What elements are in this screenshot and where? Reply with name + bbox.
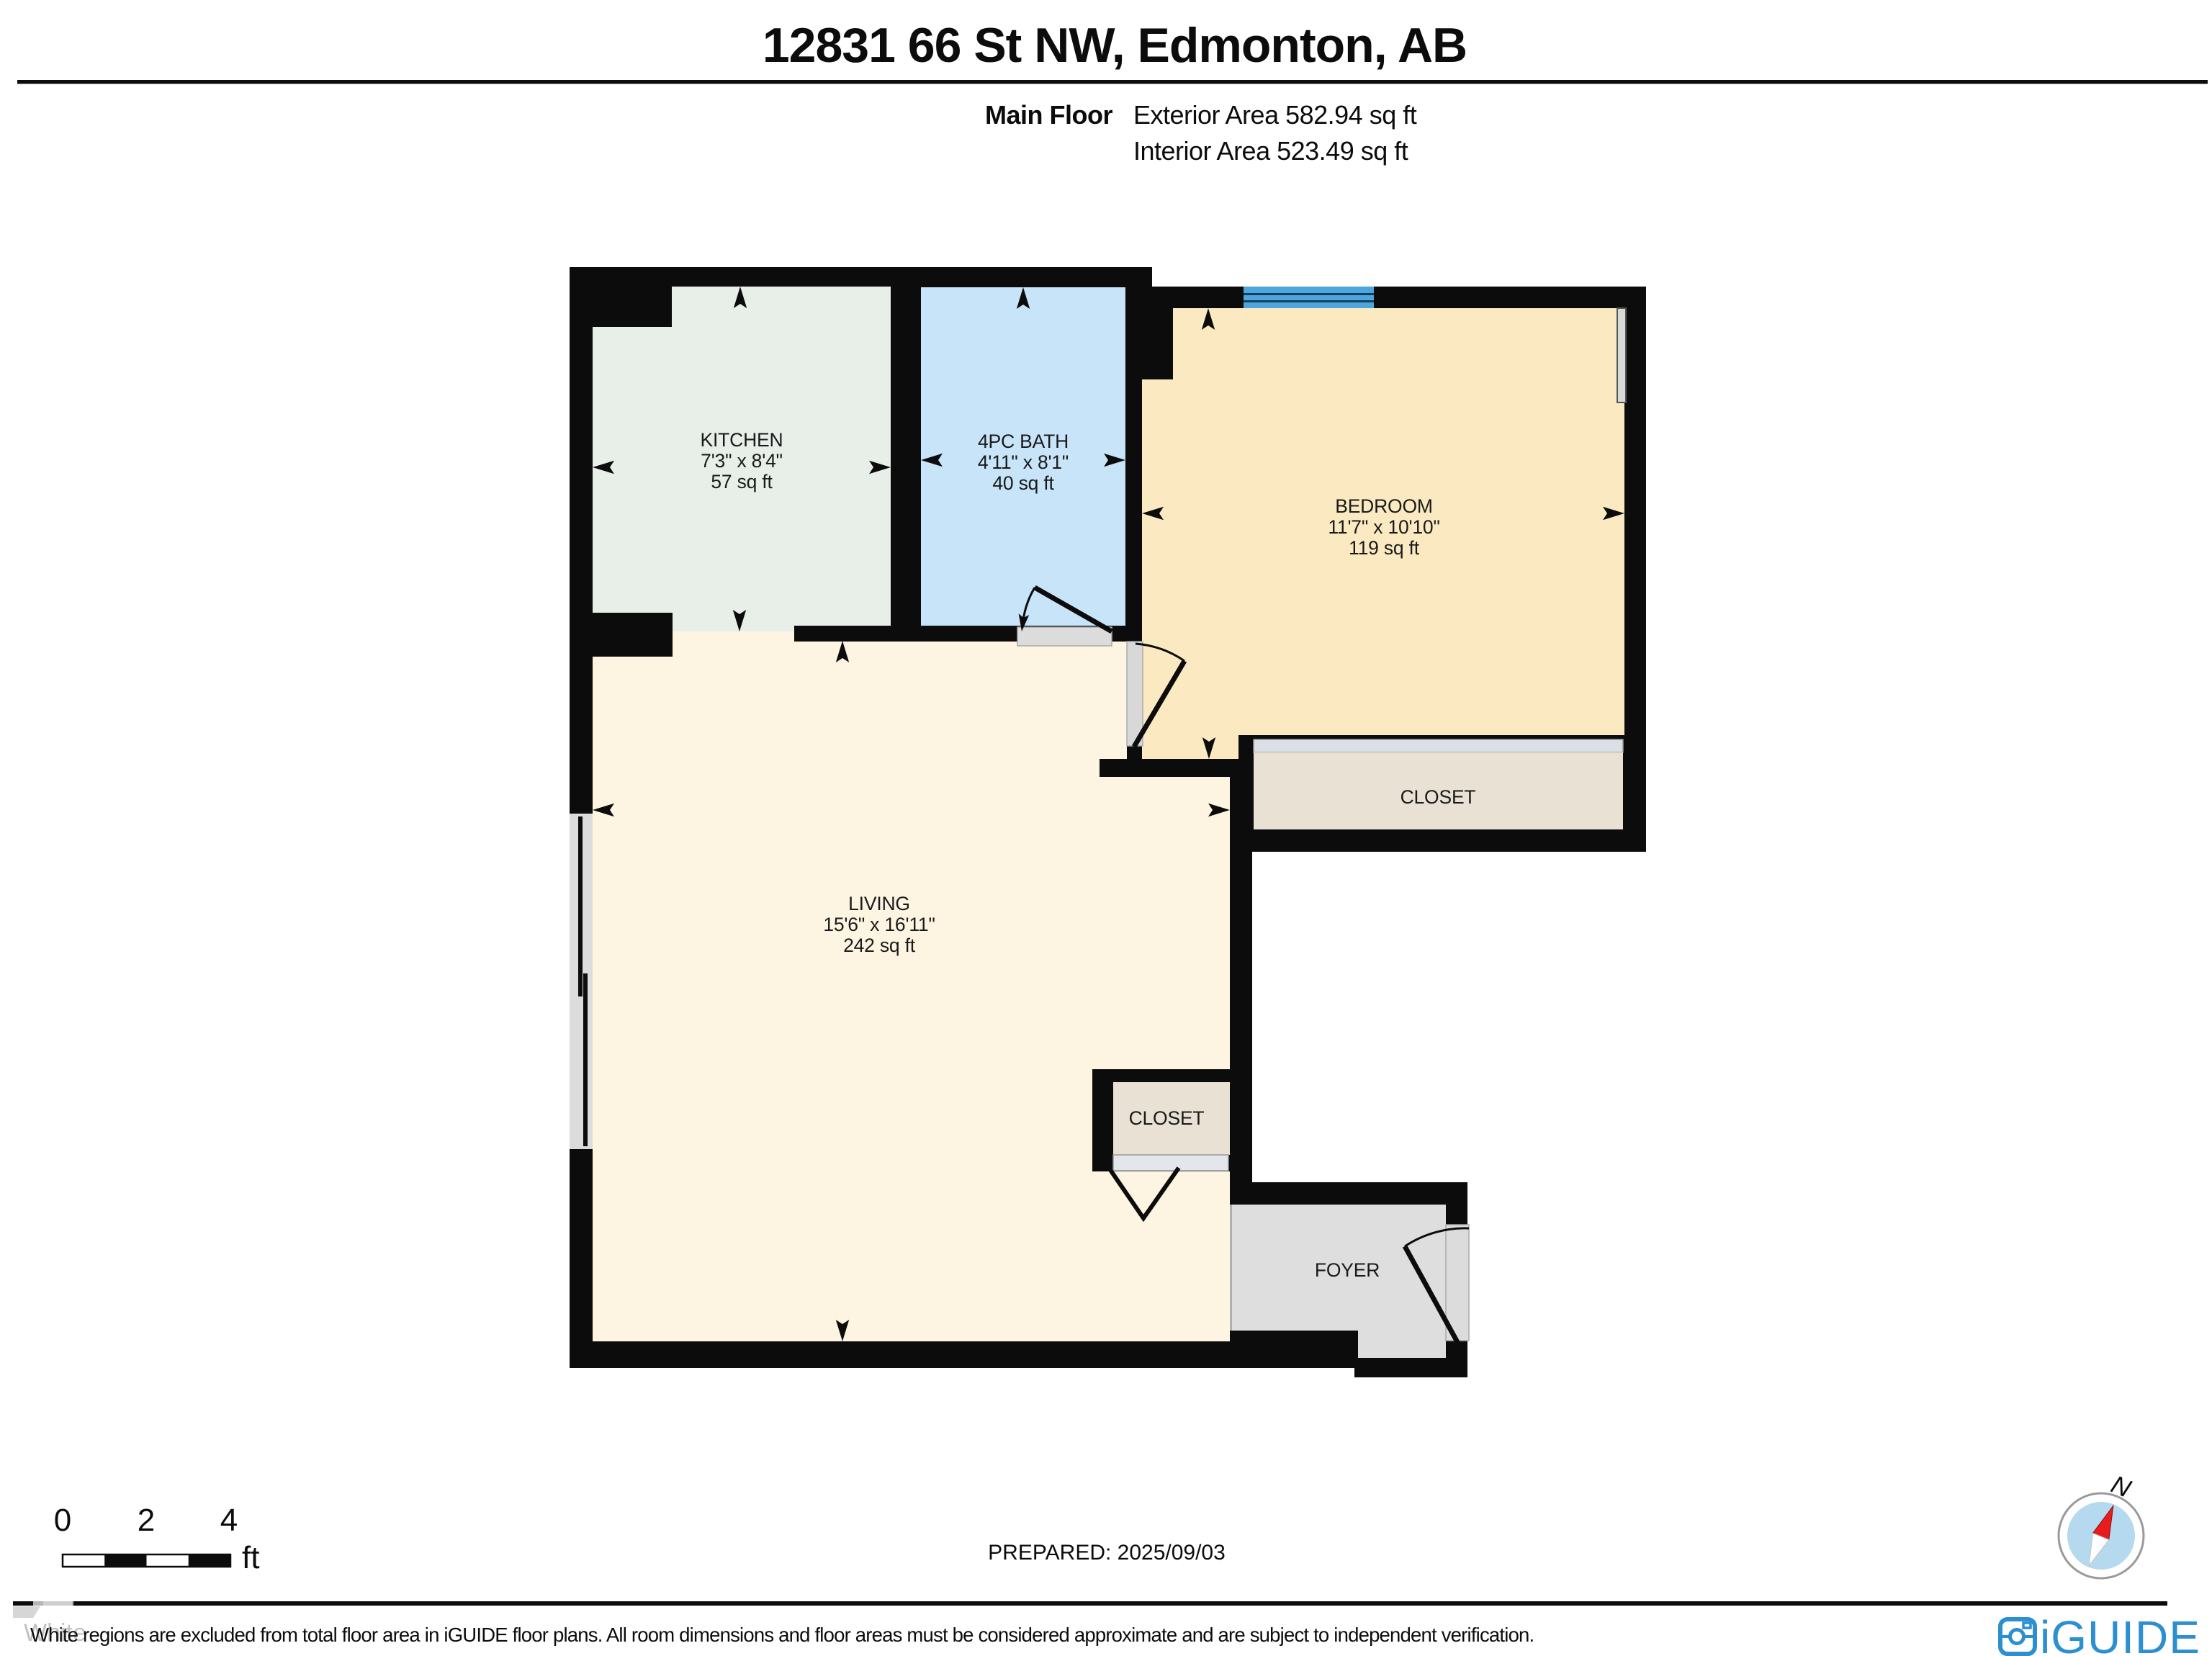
svg-text:242 sq ft: 242 sq ft [843, 935, 916, 956]
svg-text:ft: ft [242, 1540, 259, 1575]
svg-text:CLOSET: CLOSET [1401, 786, 1476, 808]
svg-text:11'7" x 10'10": 11'7" x 10'10" [1328, 516, 1439, 538]
svg-text:0: 0 [54, 1503, 71, 1538]
svg-text:4'11" x 8'1": 4'11" x 8'1" [978, 451, 1069, 473]
svg-text:BEDROOM: BEDROOM [1335, 495, 1433, 517]
svg-text:57 sq ft: 57 sq ft [711, 471, 773, 492]
svg-text:12831 66 St NW, Edmonton, AB: 12831 66 St NW, Edmonton, AB [763, 18, 1467, 73]
svg-text:LIVING: LIVING [848, 893, 910, 914]
svg-text:15'6" x 16'11": 15'6" x 16'11" [823, 914, 935, 935]
svg-text:4PC BATH: 4PC BATH [978, 431, 1069, 452]
svg-text:KITCHEN: KITCHEN [701, 429, 783, 451]
svg-text:FOYER: FOYER [1315, 1259, 1380, 1281]
svg-text:Exterior Area 582.94 sq ft: Exterior Area 582.94 sq ft [1133, 100, 1417, 130]
svg-text:White regions are excluded fro: White regions are excluded from total fl… [30, 1624, 1534, 1646]
svg-text:Interior Area 523.49 sq ft: Interior Area 523.49 sq ft [1133, 136, 1408, 166]
svg-text:7'3" x 8'4": 7'3" x 8'4" [701, 450, 783, 472]
svg-text:2: 2 [138, 1503, 155, 1538]
svg-text:4: 4 [220, 1503, 238, 1538]
svg-text:40 sq ft: 40 sq ft [992, 472, 1054, 494]
svg-text:PREPARED: 2025/09/03: PREPARED: 2025/09/03 [988, 1541, 1226, 1565]
svg-text:119 sq ft: 119 sq ft [1349, 537, 1420, 559]
svg-text:Main Floor: Main Floor [985, 100, 1112, 130]
svg-text:iGUIDE: iGUIDE [2040, 1611, 2200, 1656]
svg-text:CLOSET: CLOSET [1129, 1107, 1205, 1129]
